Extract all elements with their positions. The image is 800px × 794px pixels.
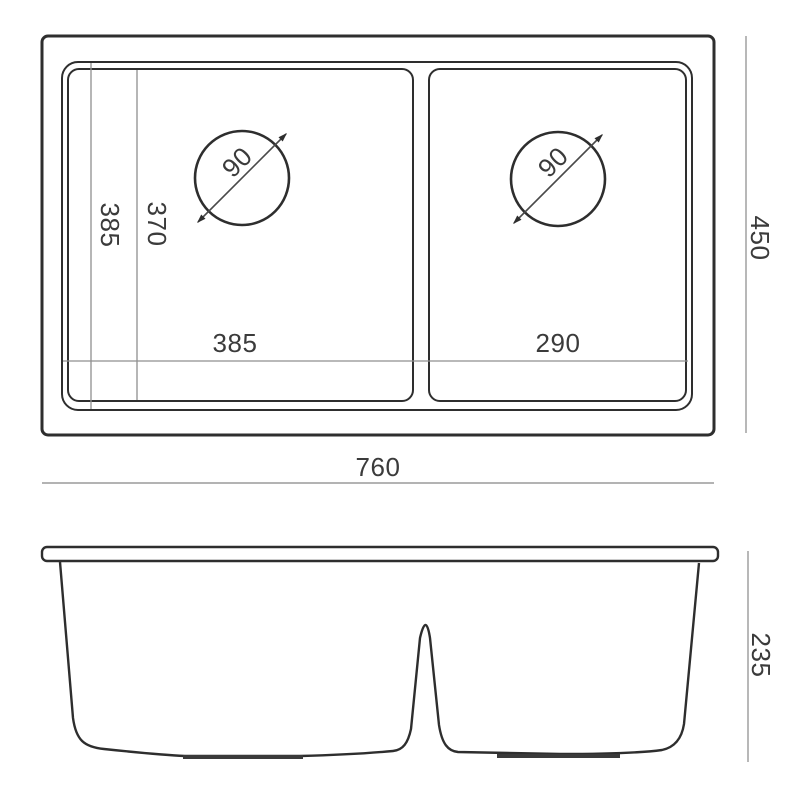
- dim-label-inner-bowl-depth: 370: [144, 202, 170, 247]
- dim-label-bowl-height: 235: [748, 633, 774, 678]
- front-view-rim-bar: [42, 547, 718, 561]
- dim-label-right-bowl-width: 290: [536, 330, 581, 356]
- dim-label-outer-bowl-depth: 385: [97, 203, 123, 248]
- drawing-linework: [0, 0, 800, 794]
- sink-dimension-drawing: 385 370 90 90 385 290 450 760 235: [0, 0, 800, 794]
- front-view-body-profile: [60, 562, 699, 756]
- dim-label-left-bowl-width: 385: [213, 330, 258, 356]
- dim-label-overall-depth: 450: [747, 216, 773, 261]
- dim-label-overall-width: 760: [356, 454, 401, 480]
